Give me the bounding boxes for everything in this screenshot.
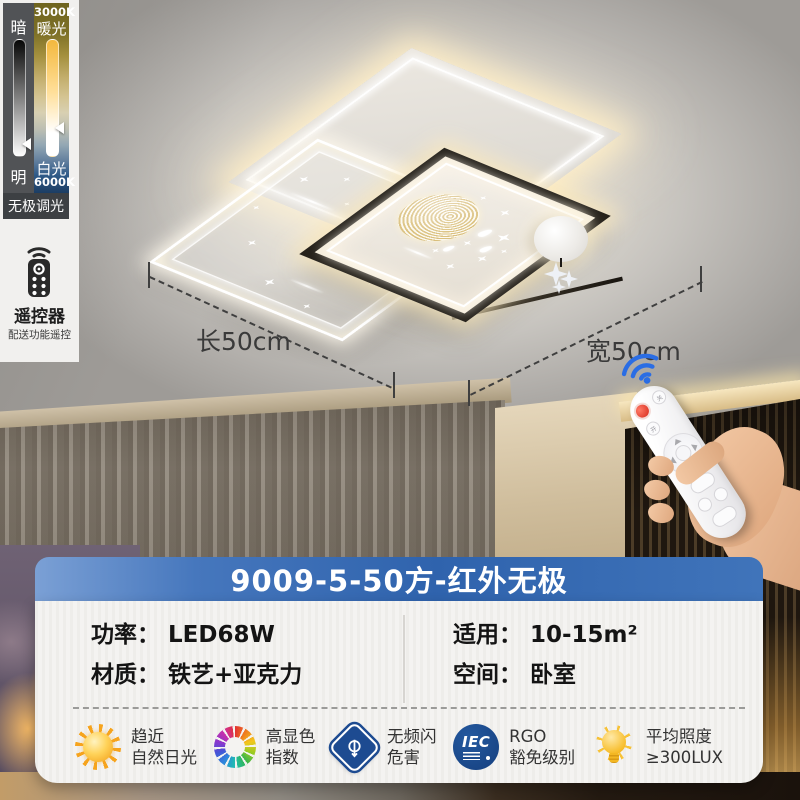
feature-text: 无频闪 <box>387 726 437 747</box>
remote-small-button <box>711 485 730 504</box>
dimension-tick <box>148 262 150 288</box>
bulb-icon <box>592 725 636 769</box>
product-promo-image: 长50cm 宽50cm 关 开 <box>0 0 800 800</box>
star-decoration <box>474 254 491 263</box>
bulb-base <box>609 753 619 763</box>
star-decoration <box>429 247 442 254</box>
feature-row: 趋近 自然日光 高显色 指数 <box>61 717 737 777</box>
feature-no-flicker: 无频闪 危害 <box>332 726 437 769</box>
space-label: 空间： <box>453 655 522 689</box>
dim-label: 暗 <box>3 14 34 38</box>
star-decoration <box>296 175 313 184</box>
left-sidebar: 暗 明 3000K 暖光 白光 6000K 无极调光 遥控器 配送功能遥控 <box>0 0 79 362</box>
star-decoration <box>493 231 515 244</box>
stepless-dimming-badge: 无极调光 <box>3 193 69 219</box>
iec-logo-dot <box>486 756 490 760</box>
feature-text: 高显色 <box>266 726 316 747</box>
area-spec: 适用： 10-15m² <box>453 615 638 649</box>
color-temperature-slider-marker <box>55 122 64 134</box>
star-decoration <box>261 277 279 287</box>
dashed-separator <box>73 707 745 709</box>
star-decoration <box>251 204 262 210</box>
power-label: 功率： <box>91 615 160 649</box>
feature-text: 趋近 <box>131 726 197 747</box>
remote-card-title: 遥控器 <box>0 302 79 327</box>
space-spec: 空间： 卧室 <box>453 655 576 689</box>
remote-small-button <box>695 495 714 514</box>
feature-text: RGO <box>509 726 575 747</box>
material-label: 材质： <box>91 655 160 689</box>
feature-text: 指数 <box>266 747 316 768</box>
feature-high-cri: 高显色 指数 <box>214 726 316 769</box>
wall-corner <box>495 392 637 572</box>
bulb-glass <box>602 730 626 754</box>
area-value: 10-15m² <box>530 622 638 648</box>
star-decoration <box>460 239 474 247</box>
feature-rgo-exempt: IEC RGO 豁免级别 <box>453 724 575 770</box>
dimension-tick <box>468 380 470 406</box>
star-decoration <box>342 201 352 207</box>
star-decoration <box>340 176 353 183</box>
dimension-tick <box>700 266 702 292</box>
color-wheel-icon <box>214 726 256 768</box>
bright-label: 明 <box>3 164 34 188</box>
crystal-stem <box>560 258 562 267</box>
star-decoration <box>497 208 514 217</box>
light-streak <box>402 246 434 260</box>
warm-light-label: 暖光 <box>34 18 69 39</box>
spec-panel: 功率： LED68W 材质： 铁艺+亚克力 适用： 10-15m² 空间： 卧室… <box>35 601 763 783</box>
color-temperature-slider-track <box>46 39 59 157</box>
star-decoration <box>443 262 458 271</box>
power-spec: 功率： LED68W <box>91 615 275 649</box>
remote-off-button: 关 <box>649 388 668 407</box>
light-streak <box>289 278 325 294</box>
iec-logo-icon: IEC <box>453 724 499 770</box>
power-value: LED68W <box>168 622 275 648</box>
iec-logo-lines <box>463 752 480 760</box>
material-value: 铁艺+亚克力 <box>168 655 302 689</box>
feature-natural-daylight: 趋近 自然日光 <box>75 724 197 770</box>
feature-text: ≥300LUX <box>646 747 723 768</box>
cool-temp-label: 6000K <box>34 175 69 189</box>
remote-control-icon <box>17 242 61 304</box>
sun-icon <box>75 724 121 770</box>
dimension-tick <box>393 372 395 398</box>
remote-on-button: 开 <box>643 419 662 438</box>
feature-text: 自然日光 <box>131 747 197 768</box>
brightness-slider-marker <box>22 138 31 150</box>
feature-text: 危害 <box>387 747 437 768</box>
feature-text: 豁免级别 <box>509 747 575 768</box>
no-flicker-certification-icon <box>328 721 380 773</box>
space-value: 卧室 <box>530 655 576 689</box>
feature-average-lux: 平均照度 ≥300LUX <box>592 725 723 769</box>
length-dimension-label: 长50cm <box>196 322 291 358</box>
area-label: 适用： <box>453 615 522 649</box>
remote-power-button <box>633 402 651 420</box>
warm-temp-label: 3000K <box>34 5 69 19</box>
teardrop-decoration <box>442 245 457 253</box>
remote-oval-button <box>710 503 740 530</box>
remote-card-subtitle: 配送功能遥控 <box>0 327 79 342</box>
teardrop-decoration <box>478 245 494 254</box>
side-moon-lamp <box>534 216 588 262</box>
teardrop-decoration <box>476 228 494 238</box>
moon-graphic <box>381 186 496 250</box>
material-spec: 材质： 铁艺+亚克力 <box>91 655 302 689</box>
model-banner: 9009-5-50方-红外无极 <box>35 557 763 601</box>
light-streak <box>289 192 334 211</box>
star-decoration <box>498 248 509 254</box>
star-decoration <box>244 238 259 247</box>
star-decoration <box>300 303 313 310</box>
iec-logo-text: IEC <box>453 733 499 751</box>
spec-column-divider <box>403 615 405 703</box>
star-decoration <box>478 195 489 201</box>
feature-text: 平均照度 <box>646 726 723 747</box>
